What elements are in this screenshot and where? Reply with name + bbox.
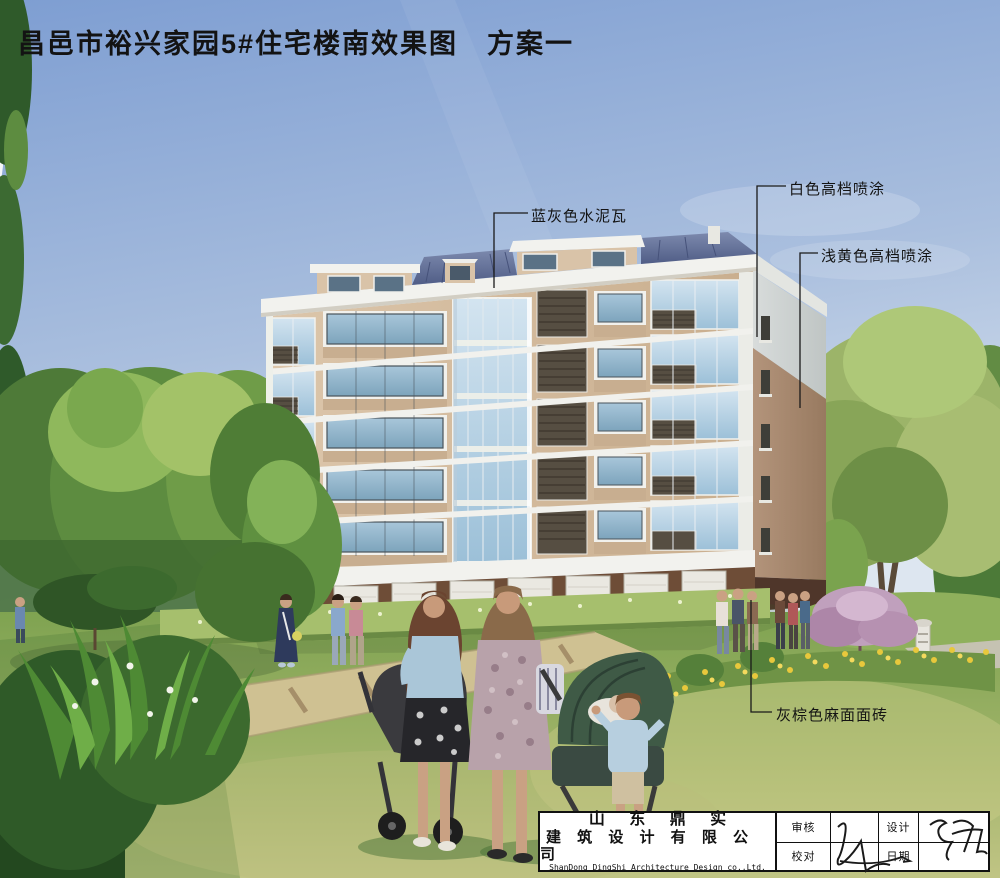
date-label: 日期 [878, 842, 918, 871]
title-block: 山 东 鼎 实 建 筑 设 计 有 限 公 司 ShanDong DingShi… [538, 811, 990, 872]
callout-roof-tile: 蓝灰色水泥瓦 [531, 205, 627, 226]
company-name-line1: 山 东 鼎 实 [579, 811, 736, 829]
glass-bay-column [453, 298, 531, 562]
review-label: 审核 [776, 813, 830, 842]
company-name-line2: 建 筑 设 计 有 限 公 司 [540, 829, 775, 863]
callout-yellow-coating: 浅黄色高档喷涂 [821, 245, 933, 266]
building [261, 226, 827, 633]
company-name-en: ShanDong DingShi Architecture Design co.… [549, 863, 766, 873]
window-column-b [323, 311, 447, 566]
callout-base-tile: 灰棕色麻面面砖 [776, 704, 888, 725]
rendering-sheet: 昌邑市裕兴家园5#住宅楼南效果图 方案一 蓝灰色水泥瓦 白色高档喷涂 浅黄色高档… [0, 0, 1000, 878]
drawing-title: 昌邑市裕兴家园5#住宅楼南效果图 方案一 [18, 22, 574, 61]
architectural-rendering [0, 0, 1000, 878]
review-signature-cell [830, 813, 878, 842]
callout-white-coating: 白色高档喷涂 [789, 178, 885, 199]
date-value-cell [918, 842, 988, 871]
proofread-label: 校对 [776, 842, 830, 871]
balcony-column-right [651, 272, 753, 554]
proofread-signature-cell [830, 842, 878, 871]
design-label: 设计 [878, 813, 918, 842]
company-cell: 山 东 鼎 实 建 筑 设 计 有 限 公 司 ShanDong DingShi… [540, 813, 776, 870]
design-signature-cell [918, 813, 988, 842]
